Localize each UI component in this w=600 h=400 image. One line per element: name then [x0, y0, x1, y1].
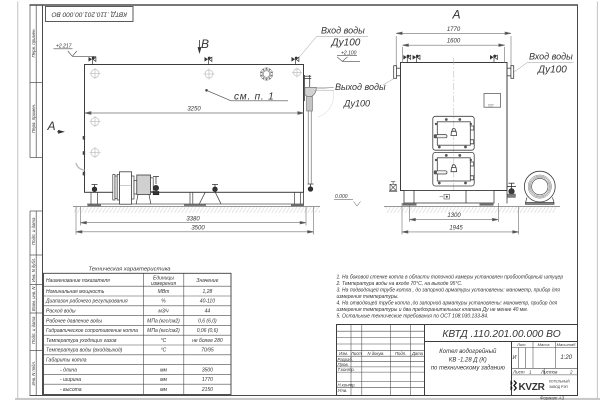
svg-text:%: %	[161, 299, 166, 305]
svg-text:Вход воды: Вход воды	[321, 26, 365, 36]
svg-text:Наименование показателя: Наименование показателя	[46, 278, 110, 284]
svg-text:4. На отводящей трубе котла ,: 4. На отводящей трубе котла ,до запорной…	[337, 299, 558, 306]
svg-text:0,6 (6,0): 0,6 (6,0)	[198, 318, 217, 324]
svg-text:1300: 1300	[447, 213, 461, 219]
svg-text:0,06 (0,6): 0,06 (0,6)	[197, 328, 219, 334]
svg-text:КВ -1,28 Д (К): КВ -1,28 Д (К)	[449, 358, 487, 364]
svg-text:40-110: 40-110	[200, 299, 215, 305]
svg-text:1:20: 1:20	[560, 355, 572, 361]
svg-text:см. п. 1: см. п. 1	[234, 91, 274, 102]
svg-text:ЗАВОД РЭП: ЗАВОД РЭП	[549, 385, 568, 389]
svg-text:Котел водогрейный: Котел водогрейный	[439, 348, 497, 355]
svg-text:N докум.: N докум.	[368, 351, 385, 356]
svg-text:Т.контр.: Т.контр.	[338, 367, 355, 372]
svg-text:Вход воды: Вход воды	[529, 51, 573, 61]
svg-text:KVZR: KVZR	[519, 382, 546, 393]
svg-text:Инв. N дубл.: Инв. N дубл.	[31, 258, 36, 282]
svg-text:1,28: 1,28	[203, 289, 213, 295]
svg-text:+2.217: +2.217	[56, 43, 72, 49]
svg-text:1945: 1945	[449, 225, 463, 231]
svg-text:А: А	[452, 8, 461, 22]
svg-text:КВТД .110.201.00.000 ВО: КВТД .110.201.00.000 ВО	[52, 11, 128, 18]
svg-text:Гидравлическое сопротивление к: Гидравлическое сопротивление котла	[46, 328, 138, 334]
svg-text:- ширина: - ширина	[60, 377, 81, 383]
svg-text:КОТЕЛЬНЫЙ: КОТЕЛЬНЫЙ	[549, 380, 570, 384]
svg-text:Габариты котла: Габариты котла	[46, 358, 87, 364]
svg-text:Техническая характеристика: Техническая характеристика	[88, 267, 171, 273]
svg-text:Утв.: Утв.	[338, 388, 348, 393]
svg-text:Подп.: Подп.	[395, 351, 406, 356]
svg-text:Взам. инв. N: Взам. инв. N	[31, 286, 36, 311]
svg-text:м3/ч: м3/ч	[158, 309, 169, 315]
svg-text:3500: 3500	[202, 367, 213, 373]
svg-text:2150: 2150	[201, 387, 213, 393]
svg-text:- высота: - высота	[60, 387, 82, 393]
svg-text:измерения температуры и два пр: измерения температуры и два предохраните…	[337, 307, 529, 313]
svg-text:Н.контр.: Н.контр.	[338, 383, 356, 388]
svg-text:Дата: Дата	[411, 351, 424, 356]
svg-text:2. Температура воды на входе: 2. Температура воды на входе 70°С, на вы…	[336, 281, 463, 287]
svg-text:Рабочее давление воды: Рабочее давление воды	[46, 318, 102, 324]
svg-text:Температура воды (вход/выход): Температура воды (вход/выход)	[46, 348, 123, 354]
svg-text:по техническому заданию: по техническому заданию	[431, 366, 506, 372]
svg-text:0.000: 0.000	[335, 194, 348, 200]
svg-text:МПа (кгс/см2): МПа (кгс/см2)	[147, 318, 180, 324]
svg-text:1600: 1600	[447, 39, 461, 45]
svg-text:мм: мм	[160, 377, 167, 383]
svg-text:Лист: Лист	[512, 370, 525, 375]
svg-text:Лист: Лист	[350, 351, 362, 356]
svg-text:3250: 3250	[187, 107, 201, 113]
svg-text:3. На подводящей трубе котла: 3. На подводящей трубе котла , до запорн…	[337, 286, 561, 293]
svg-text:Формат А3: Формат А3	[540, 395, 565, 400]
svg-text:+2.100: +2.100	[341, 50, 357, 56]
svg-text:мм: мм	[160, 367, 167, 373]
svg-text:Перв. примен.: Перв. примен.	[31, 104, 36, 133]
svg-text:измерения: измерения	[151, 281, 176, 287]
svg-text:МПа (кгс/см2): МПа (кгс/см2)	[147, 328, 180, 334]
svg-text:Расход воды: Расход воды	[46, 309, 76, 315]
svg-text:мм: мм	[160, 387, 167, 393]
svg-text:1770: 1770	[447, 27, 461, 33]
svg-text:44: 44	[205, 309, 211, 315]
svg-text:2: 2	[569, 370, 573, 375]
svg-text:МВт: МВт	[158, 289, 170, 295]
svg-text:Лит.: Лит.	[516, 342, 526, 347]
svg-text:Ду100: Ду100	[343, 98, 370, 108]
svg-text:Перв. примен.: Перв. примен.	[31, 28, 36, 57]
svg-text:Подп. и дата: Подп. и дата	[31, 217, 36, 245]
svg-text:Диапазон рабочего регулировани: Диапазон рабочего регулирования	[45, 299, 128, 305]
svg-text:Значение: Значение	[196, 278, 218, 284]
svg-text:В: В	[201, 37, 209, 51]
svg-text:3500: 3500	[191, 225, 205, 231]
svg-text:Ду100: Ду100	[537, 65, 567, 76]
svg-text:1770: 1770	[202, 377, 213, 383]
svg-text:°С: °С	[161, 348, 167, 354]
svg-text:Листов: Листов	[540, 370, 558, 375]
svg-text:Масштаб: Масштаб	[557, 342, 576, 347]
svg-text:- длина: - длина	[60, 367, 77, 373]
svg-text:Инв. N подл.: Инв. N подл.	[31, 361, 36, 385]
svg-text:Номинальная мощность: Номинальная мощность	[46, 289, 105, 295]
svg-text:Изм.: Изм.	[339, 351, 348, 356]
svg-text:КВТД .110.201.00.000 ВО: КВТД .110.201.00.000 ВО	[442, 329, 560, 340]
svg-text:Температура уходящих газов: Температура уходящих газов	[46, 338, 117, 344]
svg-text:°С: °С	[161, 338, 167, 344]
svg-text:3380: 3380	[186, 216, 200, 222]
svg-text:И: И	[513, 355, 517, 361]
svg-text:70/95: 70/95	[201, 348, 214, 354]
svg-text:не более 280: не более 280	[192, 338, 223, 344]
svg-text:измерения температуры.: измерения температуры.	[337, 294, 399, 300]
svg-text:5. Остальные технические треб: 5. Остальные технические требования по О…	[337, 313, 489, 319]
svg-text:А: А	[47, 119, 56, 133]
svg-text:Масса: Масса	[538, 342, 551, 347]
svg-text:Выход воды: Выход воды	[335, 82, 386, 92]
svg-text:1. На боковой стенке котла в: 1. На боковой стенке котла в области топ…	[337, 273, 564, 280]
svg-text:Подп. и дата: Подп. и дата	[31, 316, 36, 344]
svg-text:Ду100: Ду100	[331, 37, 361, 48]
